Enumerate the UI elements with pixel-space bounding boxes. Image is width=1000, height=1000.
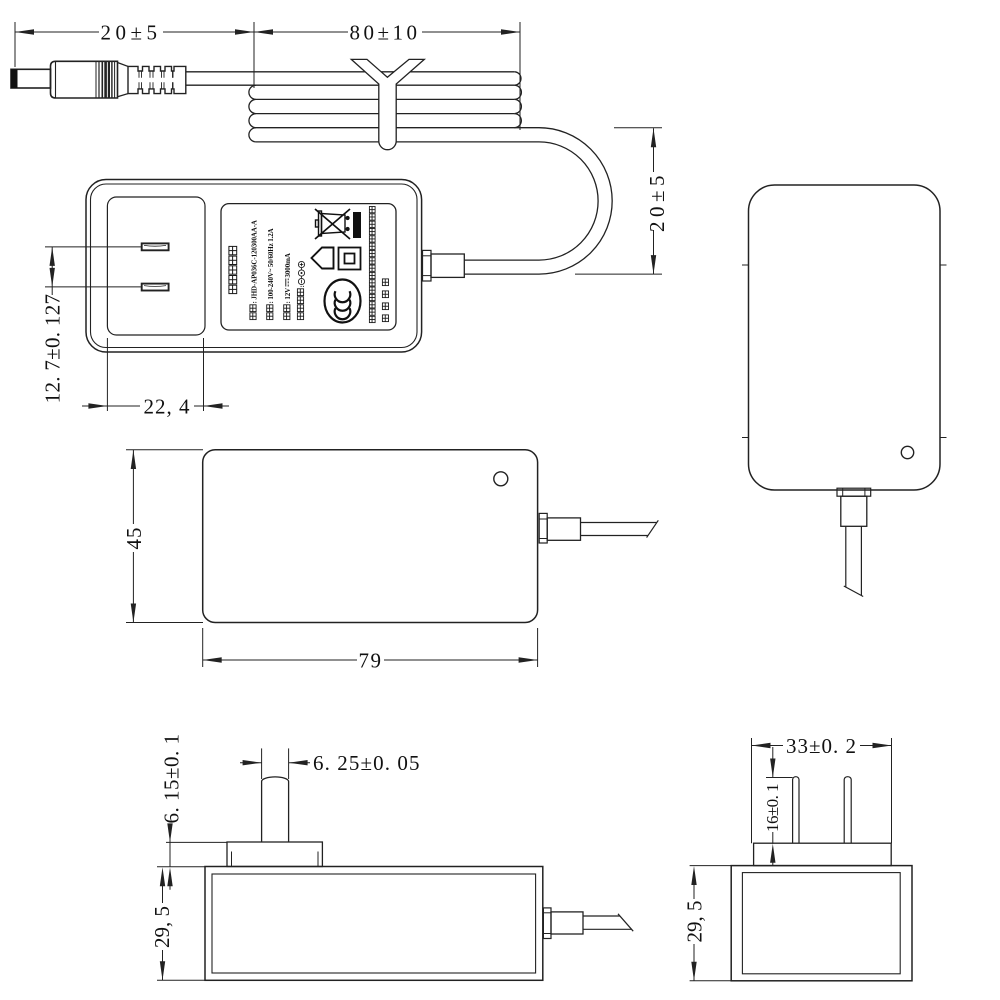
svg-text:12. 7±0. 127: 12. 7±0. 127 <box>41 294 65 404</box>
svg-text:33±0. 2: 33±0. 2 <box>786 734 857 758</box>
svg-text:16±0. 1: 16±0. 1 <box>763 784 782 832</box>
svg-text:6. 15±0. 1: 6. 15±0. 1 <box>159 733 183 823</box>
svg-text:29, 5: 29, 5 <box>150 906 174 948</box>
svg-text:79: 79 <box>359 649 383 673</box>
svg-text:6. 25±0. 05: 6. 25±0. 05 <box>313 751 421 775</box>
svg-text:: JHD-AP036C-120300AA-A: : JHD-AP036C-120300AA-A <box>250 220 258 303</box>
svg-text::: : <box>298 285 306 287</box>
svg-text:: 12V: : 12V <box>284 288 292 304</box>
svg-text:3000mA: 3000mA <box>284 253 292 277</box>
svg-text:20±5: 20±5 <box>645 171 669 232</box>
svg-text:: 100-240V~ 50/60Hz 1.2A: : 100-240V~ 50/60Hz 1.2A <box>267 228 275 303</box>
svg-text:80±10: 80±10 <box>349 21 420 45</box>
svg-text:45: 45 <box>122 527 146 550</box>
svg-text:29, 5: 29, 5 <box>682 901 706 943</box>
svg-text:22, 4: 22, 4 <box>144 395 191 419</box>
svg-text:20±5: 20±5 <box>100 21 161 45</box>
